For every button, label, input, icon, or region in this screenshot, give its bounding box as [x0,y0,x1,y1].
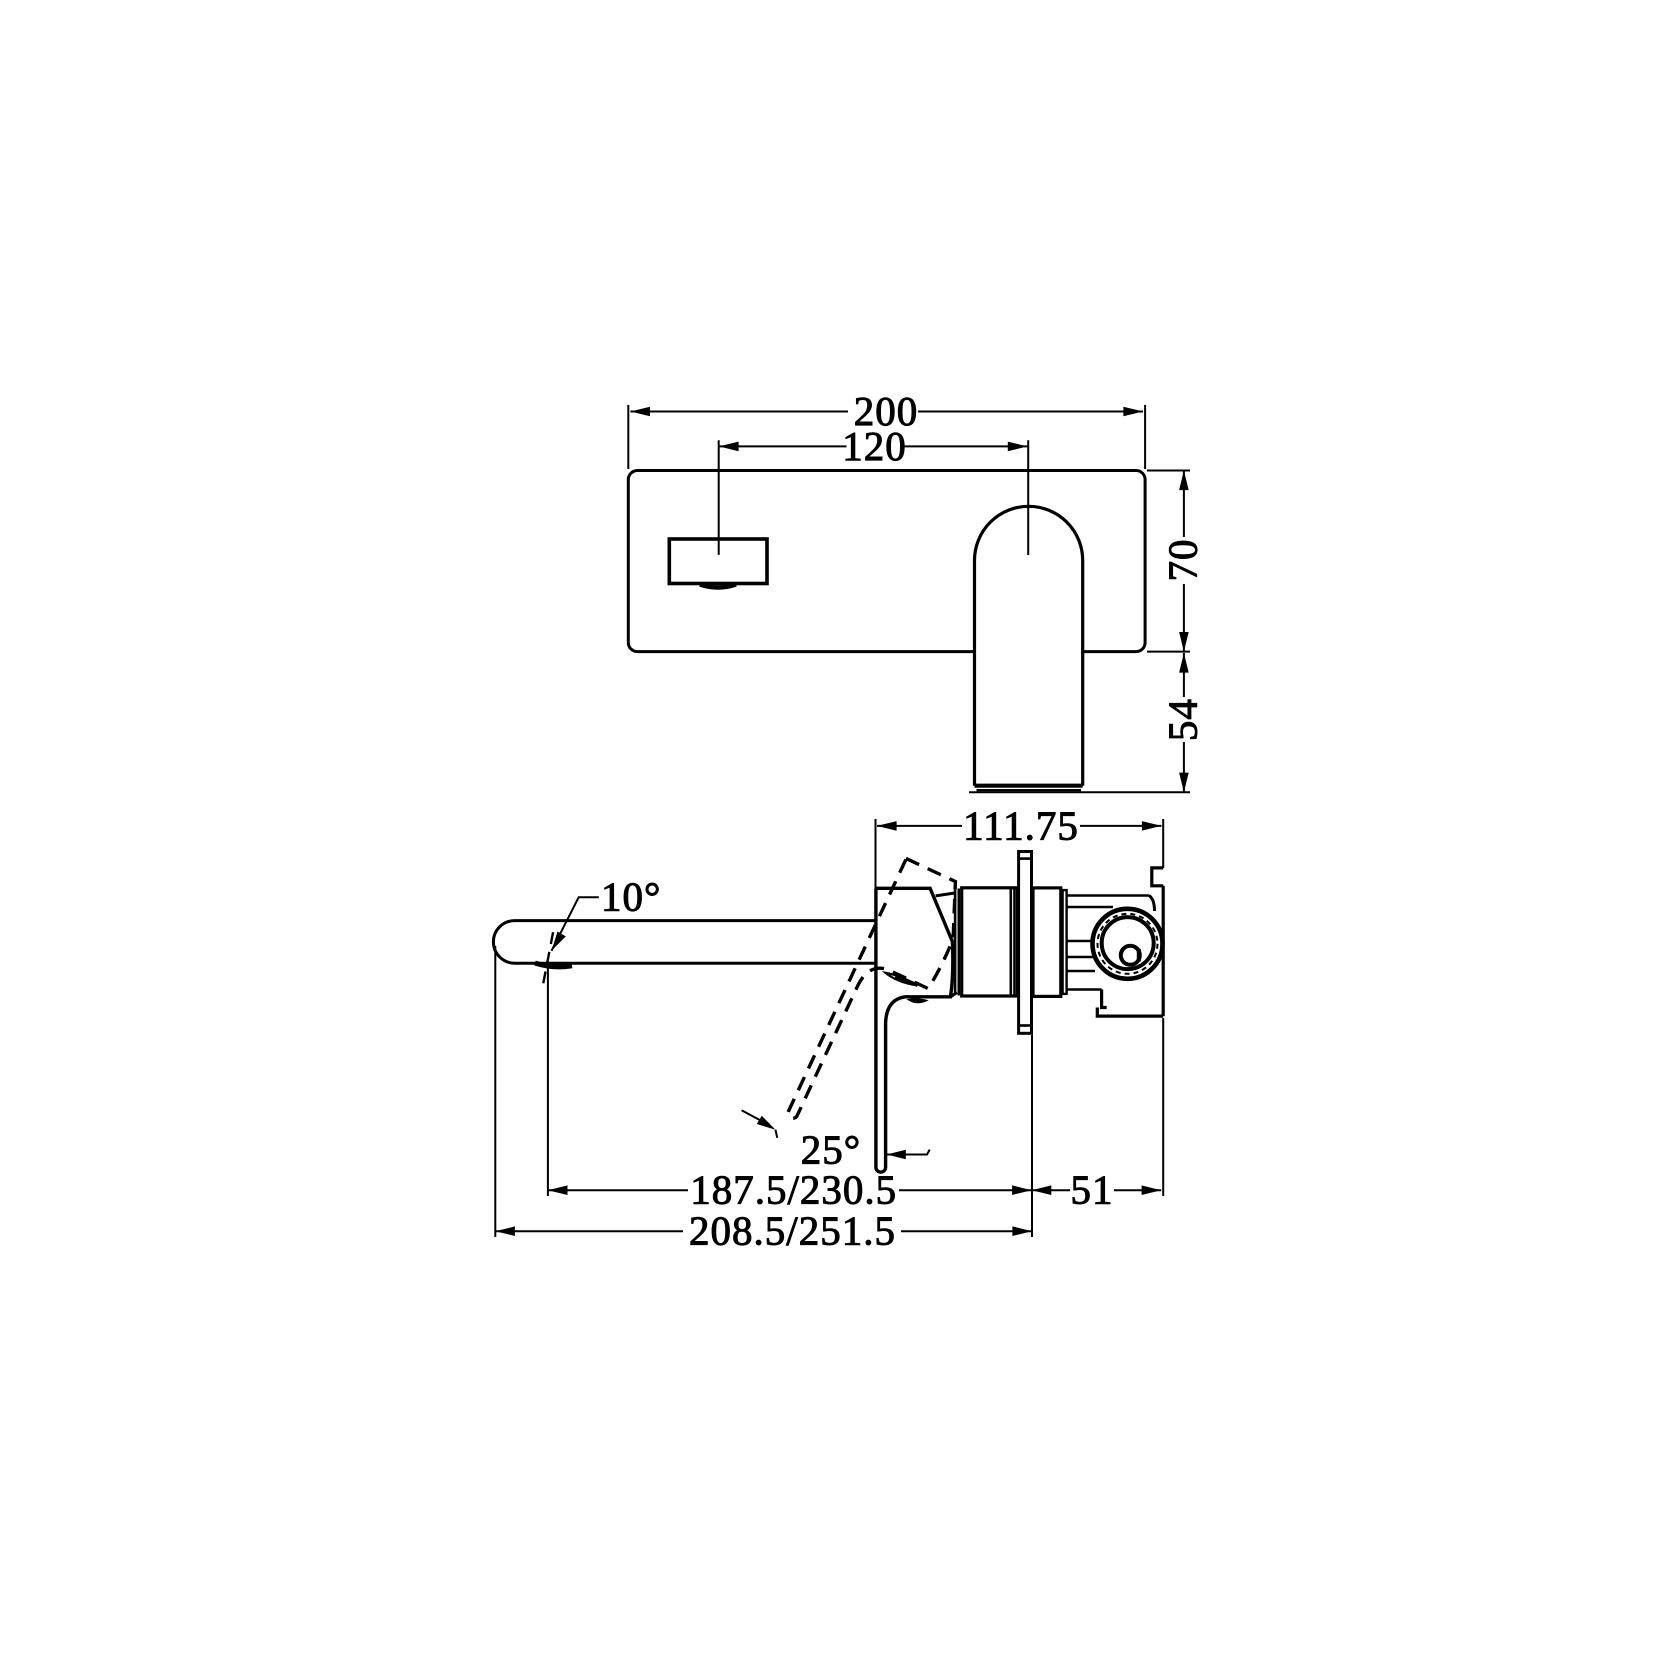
svg-text:25°: 25° [801,1127,861,1173]
svg-text:10°: 10° [601,874,661,920]
svg-text:120: 120 [842,423,907,469]
svg-text:54: 54 [1160,698,1206,741]
svg-text:51: 51 [1071,1167,1114,1213]
svg-text:187.5/230.5: 187.5/230.5 [690,1167,897,1213]
svg-text:208.5/251.5: 208.5/251.5 [689,1208,896,1254]
svg-text:111.75: 111.75 [963,802,1079,848]
svg-text:70: 70 [1160,539,1206,582]
